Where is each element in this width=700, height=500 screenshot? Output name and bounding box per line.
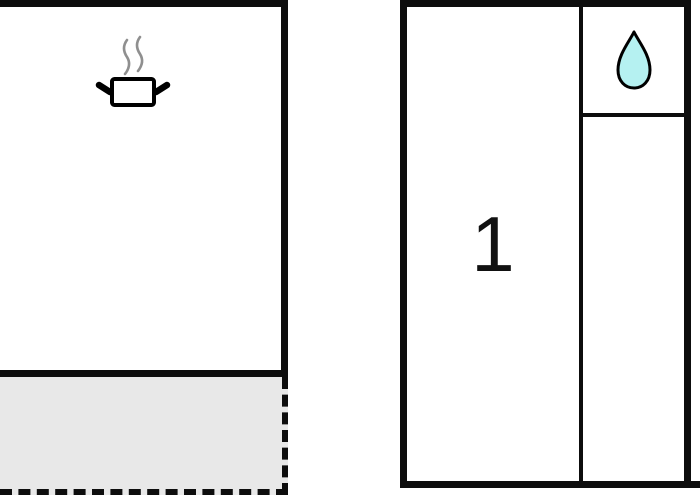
terrace-area (0, 377, 288, 495)
room-number-label: 1 (471, 205, 514, 283)
wall-bottom-extension (691, 481, 700, 488)
steam-line-left (124, 40, 129, 74)
floorplan-canvas: 1 (0, 0, 700, 500)
bathroom-area (583, 7, 684, 113)
steam-line-right (137, 37, 142, 71)
bedroom-1-area: 1 (407, 7, 579, 481)
wall-bathroom-bottom (583, 113, 684, 117)
pot-handle-right (156, 85, 167, 92)
wall-kitchen-right (281, 0, 288, 377)
water-drop-icon (614, 29, 654, 91)
wall-kitchen-bottom (0, 370, 288, 377)
kitchen-icon-box (94, 30, 172, 110)
pot-body (112, 79, 154, 105)
water-drop-shape (618, 32, 650, 88)
wall-kitchen-top (0, 0, 288, 7)
cooking-pot-icon (94, 30, 172, 110)
pot-handle-left (99, 85, 110, 92)
